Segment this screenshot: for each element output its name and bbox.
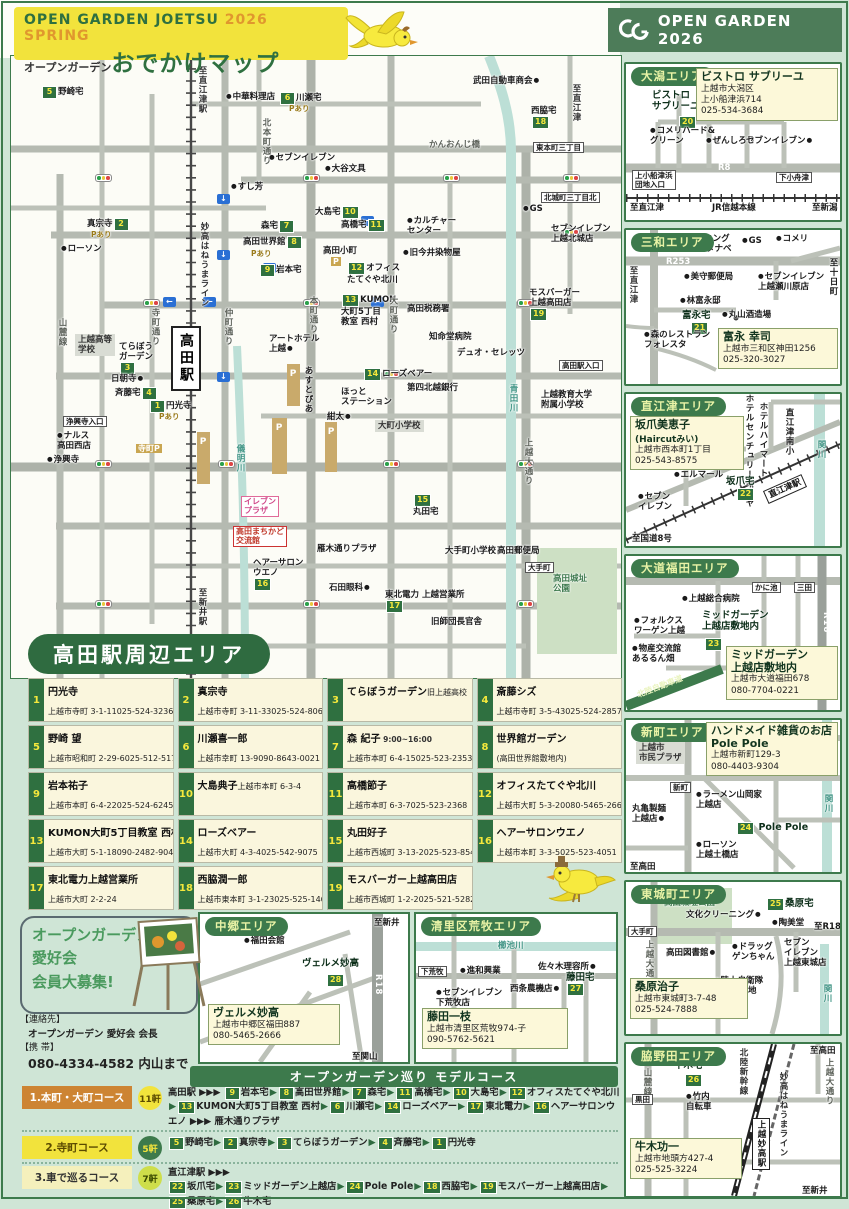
- map-label: 仲町通り: [223, 308, 233, 346]
- area-title: 中郷エリア: [205, 917, 288, 936]
- marker-badge: 7: [279, 220, 294, 233]
- map-label: ローソン 上越土橋店: [696, 840, 739, 860]
- map-label: セブンイレブン 上越北城店: [551, 224, 611, 244]
- map-label: 至新井: [802, 1186, 828, 1196]
- map-label: ドラッグ ゲンちゃん: [732, 942, 775, 962]
- map-label: 美守郵便局: [684, 272, 733, 282]
- route-arrow-icon: ▶: [423, 1137, 430, 1148]
- garden-address-line: 025-523-8547: [424, 848, 472, 857]
- course-stop: 西脇宅: [442, 1181, 470, 1192]
- area-info-box: ヴェルメ妙高 上越市中郷区福田887 080-5465-2666: [208, 1004, 340, 1045]
- map-label: Pあり: [289, 105, 310, 114]
- map-label: ヴェルメ妙高: [302, 958, 359, 969]
- marker-badge: 8: [279, 1087, 294, 1100]
- garden-address2: 上小船津浜714: [701, 95, 833, 106]
- marker-badge: 27: [567, 983, 584, 996]
- marker-badge: 19: [480, 1181, 497, 1194]
- garden-address-line: 上越市大町 4-3-4: [198, 848, 262, 857]
- garden-address-line: 上越市本町 6-4-22: [48, 801, 117, 810]
- directory-card-number: 10: [179, 773, 194, 815]
- garden-name: KUMON大町5丁目教室 西村: [48, 828, 173, 839]
- map-label: 富永宅: [682, 310, 711, 321]
- directory-card-body: ローズベアー上越市大町 4-3-4025-542-9075: [194, 820, 323, 862]
- traffic-signal-icon: [517, 600, 534, 608]
- map-label: 東北電力 上越営業所 17: [385, 590, 464, 613]
- marker-badge: 11: [368, 219, 385, 232]
- course-stop: 高橋宅: [414, 1087, 442, 1098]
- area-panel-nakago: 中郷エリア ヴェルメ妙高 上越市中郷区福田887 080-5465-2666 至…: [198, 912, 410, 1064]
- course-row-3: 3.車で巡るコース 7軒 直江津駅 ▶▶▶ 22坂爪宅▶23ミッドガーデン上越店…: [22, 1166, 622, 1209]
- one-way-arrow-icon: ↓: [217, 250, 230, 260]
- marker-badge: 25: [169, 1196, 186, 1209]
- directory-card: 9岩本祐子上越市本町 6-4-22025-524-6245: [28, 772, 174, 816]
- map-label: 武田自動車商会: [473, 76, 539, 86]
- map-label: エルマール: [674, 470, 723, 480]
- traffic-signal-icon: [443, 174, 460, 182]
- garden-address-line: 上越市西城町 1-2-2: [347, 895, 419, 904]
- marker-badge: 2: [114, 218, 129, 231]
- map-label: R18: [373, 974, 383, 995]
- course-stop: 高田世界館: [295, 1087, 342, 1098]
- traffic-signal-icon: [143, 299, 160, 307]
- map-label: 上越総合病院: [682, 594, 740, 604]
- traffic-signal-icon: [95, 460, 112, 468]
- map-label: 至関山: [352, 1052, 378, 1062]
- map-label: 下荒牧: [418, 966, 447, 977]
- one-way-arrow-icon: ←: [163, 297, 176, 307]
- marker-badge: 22: [169, 1181, 186, 1194]
- garden-name: 円光寺: [48, 687, 78, 698]
- map-label: ミッドガーデン 上越店敷地内: [702, 610, 769, 632]
- garden-phone: 025-524-7888: [635, 1005, 743, 1016]
- map-label: 12オフィス たてぐや北川: [347, 262, 400, 285]
- directory-card: 18西脇潤一郎上越市東本町 3-1-23025-525-1461: [178, 866, 324, 910]
- course-stop: モスバーガー上越高田店: [498, 1181, 600, 1192]
- map-label: 15 丸田宅: [413, 494, 439, 517]
- directory-card-body: 東北電力上越営業所上越市大町 2-2-24: [44, 867, 173, 909]
- map-label: ビストロ サブリーユ: [652, 90, 700, 112]
- map-label: アートホテル 上越: [269, 334, 320, 354]
- directory-card-body: 西脇潤一郎上越市東本町 3-1-23025-525-1461: [194, 867, 323, 909]
- map-label: 大町通り: [388, 296, 398, 334]
- garden-address: 上越市地頭方427-4: [635, 1154, 737, 1165]
- map-label: 森のレストラン フォレスタ: [644, 330, 710, 350]
- directory-card: 1円光寺上越市寺町 3-1-11025-524-3236: [28, 678, 174, 722]
- garden-address: 上越市東城町3-7-48: [635, 994, 743, 1005]
- map-label: 28: [326, 974, 345, 987]
- marker-badge: 26: [225, 1196, 242, 1209]
- member-recruitment-box: オープンガーデン 愛好会 会員大募集!: [20, 916, 198, 1014]
- map-label: 高田駅入口: [559, 360, 603, 371]
- directory-card-body: モスバーガー上越高田店上越市西城町 1-2-2025-521-5282: [343, 867, 472, 909]
- map-label: 25桑原宅: [766, 898, 814, 911]
- course-stop: 大島宅: [471, 1087, 499, 1098]
- map-label: 関川: [823, 794, 833, 813]
- map-label: 日朝寺: [111, 374, 143, 384]
- course-stop: てらぼうガーデン: [293, 1137, 367, 1148]
- map-label: 真宗寺2: [87, 218, 130, 231]
- title-en-main: OPEN GARDEN JOETSU: [24, 12, 219, 28]
- garden-name: 西脇潤一郎: [198, 875, 248, 886]
- garden-phone: 090-5762-5621: [427, 1035, 563, 1046]
- marker-badge: 1: [150, 400, 165, 413]
- garden-address-line: 025-525-1461: [274, 895, 322, 904]
- garden-address-line: 上越市寺町 3-1-11: [48, 707, 117, 716]
- directory-card: 15丸田好子上越市西城町 3-13-2025-523-8547: [327, 819, 473, 863]
- map-label: 儀明川: [235, 444, 245, 473]
- directory-card-number: 7: [328, 726, 343, 768]
- garden-name: ハンドメイド雑貨のお店 Pole Pole: [711, 725, 833, 750]
- map-label: 妙高はねうまライン: [199, 222, 209, 308]
- map-label: 26: [684, 1074, 703, 1087]
- map-label: 至十日町: [828, 258, 838, 296]
- area-info-box: ビストロ サブリーユ 上越市大潟区 上小船津浜714 025-534-3684: [696, 68, 838, 121]
- directory-card-body: 川瀬喜一郎上越市幸町 13-9090-8643-0021: [194, 726, 323, 768]
- marker-badge: 5: [42, 86, 57, 99]
- map-label: デュオ・セレッツ: [457, 348, 525, 358]
- title-jp-small: オープンガーデン: [24, 61, 111, 74]
- title-en: OPEN GARDEN JOETSU 2026 SPRING: [24, 12, 338, 44]
- easel-illustration: [120, 906, 210, 1016]
- map-label: 陶美堂: [772, 918, 804, 928]
- map-label: 旧今井染物屋: [403, 248, 461, 258]
- garden-address: 上越市清里区荒牧974-子: [427, 1024, 563, 1035]
- course-stop: 桑原宅: [187, 1196, 215, 1207]
- garden-address-line: 025-521-5282: [419, 895, 472, 904]
- map-label: 直江津駅: [763, 474, 807, 504]
- marker-badge: 14: [384, 1101, 401, 1114]
- marker-badge: 18: [532, 116, 549, 129]
- marker-badge: 1: [432, 1137, 447, 1150]
- garden-name: ビストロ サブリーユ: [701, 71, 833, 84]
- banner-label: OPEN GARDEN 2026: [658, 12, 832, 48]
- garden-address-line: 025-542-9075: [261, 848, 318, 857]
- marker-badge: 6: [330, 1101, 345, 1114]
- area-title: 清里区荒牧エリア: [421, 917, 541, 936]
- garden-name: モスバーガー上越高田店: [347, 875, 457, 886]
- directory-card-body: 真宗寺上越市寺町 3-11-33025-524-8062: [194, 679, 323, 721]
- map-label: ナルス 高田西店: [57, 431, 91, 451]
- map-label: 寺町P: [136, 444, 162, 453]
- course-count-badge: 7軒: [138, 1166, 162, 1190]
- traffic-signal-icon: [95, 600, 112, 608]
- garden-address-line: 上越市幸町 13-9: [198, 754, 259, 763]
- directory-card-body: 高橋節子上越市本町 6-3-7025-523-2368: [343, 773, 472, 815]
- map-label: 大手町: [628, 926, 657, 937]
- marker-badge: 13: [342, 294, 359, 307]
- garden-name: ヘアーサロンウエノ: [497, 828, 586, 839]
- map-label: 浄興寺: [47, 455, 79, 465]
- garden-address: 上越市大潟区: [701, 84, 833, 95]
- course-divider: [22, 1130, 618, 1132]
- map-label: 大手町: [525, 562, 554, 573]
- title-jp: オープンガーデンおでかけマップ: [24, 44, 338, 78]
- map-label: 旧師団長官舎: [431, 617, 482, 627]
- traffic-signal-icon: [218, 460, 235, 468]
- garden-address-line: 上越市本町 6-4-15: [347, 754, 416, 763]
- map-label: セブンイレブン: [746, 136, 812, 146]
- map-label: 東本町三丁目: [533, 142, 584, 153]
- map-label: 三田: [794, 582, 815, 593]
- marker-badge: 17: [467, 1101, 484, 1114]
- garden-address: 上越市三和区神田1256: [723, 344, 833, 355]
- map-label: 上越市 市民プラザ: [636, 742, 685, 764]
- marker-badge: 23: [225, 1181, 242, 1194]
- garden-address: 上越市新町129-3: [711, 750, 833, 761]
- course-route: 高田駅 ▶▶▶ 9岩本宅▶8高田世界館▶7森宅▶11高橋宅▶10大島宅▶12オフ…: [168, 1086, 622, 1129]
- marker-badge: 11: [396, 1087, 413, 1100]
- bird-illustration-flying: [342, 0, 420, 62]
- garden-address-line: 上越市大町 5-1-18: [48, 848, 117, 857]
- directory-card-number: 2: [179, 679, 194, 721]
- garden-address: 上越市中郷区福田887: [213, 1020, 335, 1031]
- map-label: 高田城址 公園: [553, 574, 587, 594]
- garden-address-line: 旧上越高校: [427, 688, 467, 697]
- course-stop: 東北電力: [485, 1101, 522, 1112]
- map-label: セブン イレブン: [638, 492, 672, 512]
- directory-card: 14ローズベアー上越市大町 4-3-4025-542-9075: [178, 819, 324, 863]
- marker-badge: 9: [260, 264, 275, 277]
- map-label: 西条農機店: [510, 984, 559, 994]
- title-banner: OPEN GARDEN JOETSU 2026 SPRING オープンガーデンお…: [14, 7, 348, 60]
- garden-name: 野崎 望: [48, 734, 81, 745]
- area-info-box: 藤田一枝 上越市清里区荒牧974-子 090-5762-5621: [422, 1008, 568, 1049]
- map-label: モスバーガー 上越高田店 19: [529, 288, 580, 321]
- directory-card: 2真宗寺上越市寺町 3-11-33025-524-8062: [178, 678, 324, 722]
- open-garden-logo: [618, 16, 650, 44]
- map-label: ヘアーサロン ウエノ 16: [253, 558, 303, 591]
- marker-badge: 16: [533, 1101, 550, 1114]
- map-label: セブンイレブン 上越瀬川原店: [758, 272, 824, 292]
- map-label: 北陸自動車道: [636, 674, 684, 700]
- course-stop: 坂爪宅: [187, 1181, 215, 1192]
- route-arrow-icon: ▶: [500, 1087, 507, 1098]
- map-label: 藤田宅 27: [566, 972, 595, 996]
- map-label: ホテルハイマート: [758, 402, 768, 478]
- marker-badge: 28: [327, 974, 344, 987]
- map-label: 山麓線: [642, 1068, 652, 1097]
- directory-card-number: 13: [29, 820, 44, 862]
- route-arrow-icon: ▶: [601, 1181, 608, 1192]
- traffic-signal-icon: [383, 460, 400, 468]
- route-arrow-icon: ▶: [387, 1087, 394, 1098]
- map-label: 上越教育大学 附属小学校: [541, 390, 592, 410]
- map-label: かに池: [752, 582, 781, 593]
- directory-card: 13KUMON大町5丁目教室 西村上越市大町 5-1-18090-2482-90…: [28, 819, 174, 863]
- marker-badge: 6: [280, 92, 295, 105]
- course-stop: ミッドガーデン上越店: [243, 1181, 336, 1192]
- course-stop: ローズベアー: [402, 1101, 457, 1112]
- marker-badge: 5: [169, 1137, 184, 1150]
- garden-name: てらぼうガーデン: [347, 687, 427, 698]
- map-label: 下小舟津: [776, 172, 812, 183]
- garden-phone: 080-7704-0221: [731, 686, 833, 697]
- directory-card: 17東北電力上越営業所上越市大町 2-2-24: [28, 866, 174, 910]
- map-label: R18: [821, 612, 831, 633]
- directory-card: 12オフィスたてぐや北川上越市大町 5-3-20080-5465-2666: [477, 772, 623, 816]
- area-info-box: ハンドメイド雑貨のお店 Pole Pole 上越市新町129-3 080-440…: [706, 722, 838, 776]
- directory-card-number: 9: [29, 773, 44, 815]
- garden-address-line: 上越市本町 6-3-4: [238, 782, 302, 791]
- course-stop: 真宗寺: [239, 1137, 267, 1148]
- garden-address-line: 025-523-2368: [411, 801, 468, 810]
- garden-address-line: 上越市西城町 3-13-2: [347, 848, 424, 857]
- garden-address-line: 上越市大町 2-2-24: [48, 895, 117, 904]
- marker-badge: 10: [453, 1087, 470, 1100]
- area-title: 新町エリア: [631, 723, 714, 742]
- route-arrow-icon: ▶: [470, 1181, 477, 1192]
- directory-card-body: 世界館ガーデン(高田世界館敷地内)上越市本町 6-4-21: [493, 726, 622, 768]
- area-panel-tojomachi: 東城町エリア 桑原治子 上越市東城町3-7-48 025-524-7888 高田…: [624, 880, 842, 1036]
- map-label: 丸山酒造場: [722, 310, 771, 320]
- garden-phone: 025-543-8575: [635, 456, 739, 467]
- garden-phone: 025-525-3224: [635, 1165, 737, 1176]
- area-title: 大道福田エリア: [631, 559, 739, 578]
- directory-card-body: 丸田好子上越市西城町 3-13-2025-523-8547: [343, 820, 472, 862]
- garden-name: 富永 幸司: [723, 331, 833, 344]
- course-label: 3.車で巡るコース: [22, 1166, 132, 1189]
- map-label: R8: [718, 163, 730, 173]
- route-arrow-icon: ▶: [216, 1181, 223, 1192]
- directory-card-number: 5: [29, 726, 44, 768]
- marker-badge: 4: [142, 387, 157, 400]
- garden-phone: 080-5465-2666: [213, 1031, 335, 1042]
- course-stop: Pole Pole: [365, 1181, 414, 1192]
- directory-card-body: 斎藤シズ上越市寺町 3-5-43025-524-2857: [493, 679, 622, 721]
- area-panel-daidofukuda: 大道福田エリア ミッドガーデン 上越店敷地内 上越市大道福田678 080-77…: [624, 554, 842, 712]
- map-label: 高田世界館8: [243, 236, 303, 249]
- course-stop: 川瀬宅: [346, 1101, 374, 1112]
- garden-name: ミッドガーデン 上越店敷地内: [731, 649, 833, 674]
- directory-card-body: 岩本祐子上越市本町 6-4-22025-524-6245: [44, 773, 173, 815]
- map-label: 紺太: [327, 412, 351, 422]
- directory-card-body: てらぼうガーデン旧上越高校: [343, 679, 471, 721]
- map-label: 直江津南小: [784, 408, 794, 456]
- marker-badge: 24: [737, 822, 754, 835]
- map-label: かんおんじ橋: [429, 140, 480, 150]
- map-label: 雁木通りプラザ: [317, 544, 377, 554]
- route-arrow-icon: ▶: [169, 1101, 176, 1112]
- garden-address-line: 上越市昭和町 2-29-6: [48, 754, 125, 763]
- map-label: 至新井駅: [197, 588, 207, 626]
- garden-phone: 080-4403-9304: [711, 762, 833, 773]
- directory-card-number: 1: [29, 679, 44, 721]
- map-label: 新町: [670, 782, 691, 793]
- route-arrow-icon: ▶: [369, 1137, 376, 1148]
- directory-card-number: 15: [328, 820, 343, 862]
- map-label: 至新井: [374, 918, 400, 928]
- route-arrow-icon: ▶: [458, 1101, 465, 1112]
- route-arrow-icon: ▶: [337, 1181, 344, 1192]
- map-label: 上越大通り: [523, 438, 533, 486]
- map-label: てらぼう ガーデン 3: [119, 342, 153, 375]
- course-stop: 森宅: [368, 1087, 387, 1098]
- route-arrow-icon: ▶: [214, 1137, 221, 1148]
- map-label: 大島宅10: [315, 206, 360, 219]
- garden-address-line: (高田世界館敷地内): [497, 754, 567, 763]
- area-info-box: ミッドガーデン 上越店敷地内 上越市大道福田678 080-7704-0221: [726, 646, 838, 700]
- directory-card: 11高橋節子上越市本町 6-3-7025-523-2368: [327, 772, 473, 816]
- map-label: コメリ: [776, 234, 808, 244]
- marker-badge: 22: [737, 488, 754, 501]
- route-arrow-icon: ▶: [268, 1137, 275, 1148]
- map-label: 上越妙高駅: [752, 1118, 770, 1170]
- contact-block: 【連絡先】 オープンガーデン 愛好会 会長 【携 帯】 080-4334-458…: [20, 1014, 210, 1074]
- directory-card-number: 14: [179, 820, 194, 862]
- marker-badge: 2: [223, 1137, 238, 1150]
- map-label: 関川: [822, 984, 832, 1003]
- garden-name: 桑原治子: [635, 981, 743, 994]
- directory-card-number: 3: [328, 679, 343, 721]
- marker-badge: 7: [352, 1087, 367, 1100]
- garden-address-line: 上越市寺町 3-5-43: [497, 707, 566, 716]
- garden-name: オフィスたてぐや北川: [497, 781, 597, 792]
- map-label: 上越高等 学校: [75, 334, 115, 356]
- garden-name: 斎藤シズ: [497, 687, 537, 698]
- map-label: 至高田: [630, 862, 656, 872]
- area-panel-ogata: 大潟エリア ビストロ サブリーユ 上越市大潟区 上小船津浜714 025-534…: [624, 62, 842, 222]
- area-info-box: 桑原治子 上越市東城町3-7-48 025-524-7888: [630, 978, 748, 1019]
- course-row-1: 1.本町・大町コース 11軒 高田駅 ▶▶▶ 9岩本宅▶8高田世界館▶7森宅▶1…: [22, 1086, 622, 1129]
- map-label: 北陸新幹線: [738, 1048, 748, 1096]
- directory-card-number: 4: [478, 679, 493, 721]
- title-jp-big: おでかけマップ: [111, 51, 279, 77]
- route-arrow-icon: ▶: [443, 1087, 450, 1098]
- route-arrow-icon: ▶: [270, 1087, 277, 1098]
- garden-name: 高橋節子: [347, 781, 387, 792]
- area-title: 三和エリア: [631, 233, 714, 252]
- garden-directory: 1円光寺上越市寺町 3-1-11025-524-32362真宗寺上越市寺町 3-…: [28, 678, 622, 910]
- course-stop: KUMON大町5丁目教室 西村: [196, 1101, 320, 1112]
- garden-address: 上越市西本町1丁目: [635, 445, 739, 456]
- map-label: 9岩本宅: [259, 264, 302, 277]
- map-label: 浄興寺入口: [63, 416, 107, 427]
- map-label: 14ローズベアー: [363, 368, 432, 381]
- directory-card: 4斎藤シズ上越市寺町 3-5-43025-524-2857: [477, 678, 623, 722]
- phone-label: 【携 帯】: [20, 1042, 210, 1056]
- map-label: 24 Pole Pole: [736, 822, 808, 835]
- directory-card-body: オフィスたてぐや北川上越市大町 5-3-20080-5465-2666: [493, 773, 622, 815]
- garden-address-line: 上越市本町 6-3-7: [347, 801, 411, 810]
- map-label: ローソン: [61, 244, 102, 254]
- course-count-badge: 11軒: [138, 1086, 162, 1110]
- bird-illustration-standing: [545, 848, 617, 906]
- map-label: 文化クリーニング: [686, 910, 761, 920]
- garden-address-line: 上越市大町 5-3-20: [497, 801, 566, 810]
- map-label: Pあり: [251, 250, 272, 259]
- map-label: 至高田: [810, 1046, 836, 1056]
- area-panel-kiyosato-aramaki: 清里区荒牧エリア 藤田一枝 上越市清里区荒牧974-子 090-5762-562…: [414, 912, 618, 1064]
- area-panel-wakinoda: 脇野田エリア 牛木功一 上越市地頭方427-4 025-525-3224 山麓線…: [624, 1042, 842, 1198]
- map-label: Pあり: [91, 231, 112, 240]
- map-label: 竹内 自転車: [686, 1092, 712, 1112]
- course-divider: [22, 1162, 618, 1164]
- marker-badge: 3: [277, 1137, 292, 1150]
- marker-badge: 12: [348, 262, 365, 275]
- map-label: Pあり: [159, 413, 180, 422]
- map-label: 本町通り: [308, 296, 318, 334]
- area-panel-sanwa: 三和エリア 富永 幸司 上越市三和区神田1256 025-320-3027 クリ…: [624, 228, 842, 386]
- garden-phone: 025-534-3684: [701, 106, 833, 117]
- course-label: 1.本町・大町コース: [22, 1086, 132, 1109]
- traffic-signal-icon: [303, 600, 320, 608]
- one-way-arrow-icon: ↓: [217, 194, 230, 204]
- area-panel-naoetsu: 直江津エリア 坂爪美恵子 (Haircutみい) 上越市西本町1丁目 025-5…: [624, 392, 842, 548]
- garden-address-line: 025-512-5173: [125, 754, 173, 763]
- directory-card-body: 円光寺上越市寺町 3-1-11025-524-3236: [44, 679, 173, 721]
- map-label: イレブン プラザ: [241, 496, 279, 517]
- map-label: 山麓線: [57, 318, 67, 347]
